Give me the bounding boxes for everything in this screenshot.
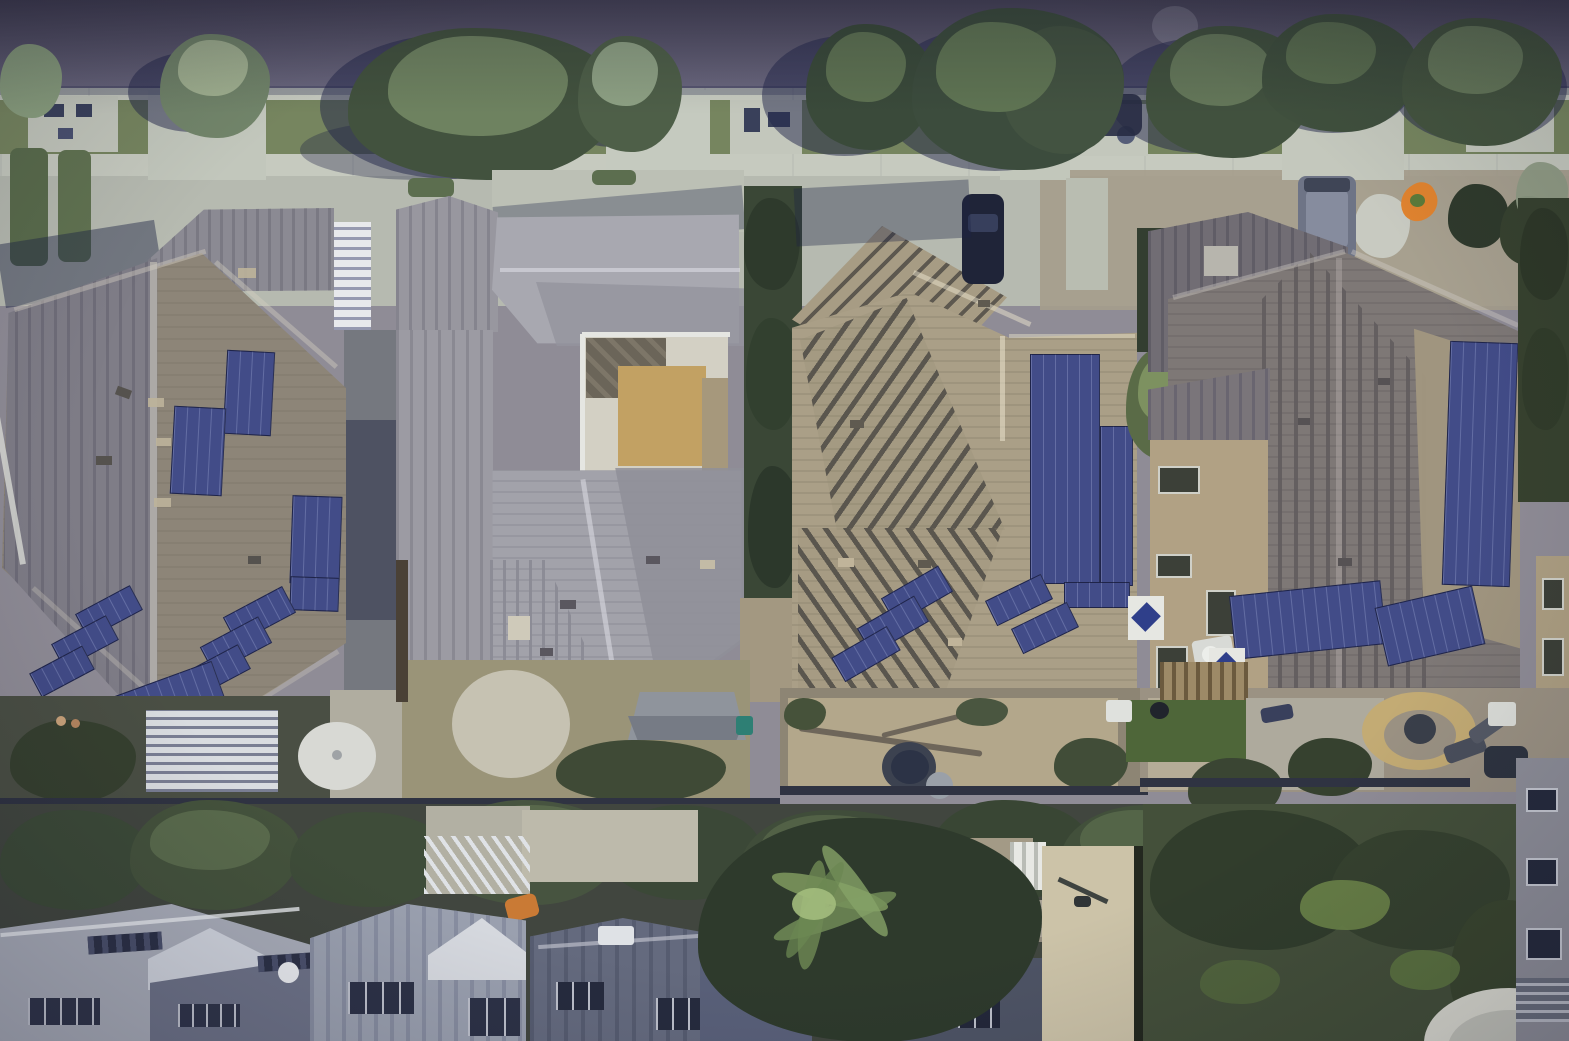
aerial-neighborhood-photo [0, 0, 1569, 1041]
fire-bowl [1404, 714, 1436, 744]
tree-highlight [150, 810, 270, 870]
tree-highlight [388, 36, 568, 136]
hedge [592, 170, 636, 185]
fence-dark [1134, 846, 1143, 1041]
roof-vent [1298, 418, 1310, 425]
roof-vent [1338, 558, 1352, 566]
umbrella-center [332, 750, 342, 760]
roof-patch [148, 398, 164, 407]
fence-line [780, 786, 1148, 795]
roof-vent [646, 556, 660, 564]
ac-unit [598, 926, 634, 945]
roof-patch [156, 438, 171, 446]
roof-ridge [1000, 336, 1005, 441]
solar-array [170, 406, 227, 497]
planter [784, 698, 826, 730]
wall-trim [580, 334, 585, 474]
window-row [178, 1004, 240, 1027]
side-yard-shadow [344, 420, 402, 620]
utility-box [76, 104, 92, 117]
courtyard-shade [702, 378, 728, 472]
tree-highlight [1286, 22, 1376, 84]
van-glass [1304, 178, 1350, 192]
roof-patch [1204, 246, 1238, 276]
lawn-strip [1126, 700, 1250, 762]
kayak-center [1410, 194, 1425, 207]
solar-array [1100, 426, 1133, 586]
wall-trim [582, 332, 730, 337]
hedge-blob [746, 318, 800, 430]
solar-array [289, 495, 342, 585]
roof-patch [508, 616, 530, 640]
palm-dark [1448, 184, 1508, 248]
patio-circle [452, 670, 570, 778]
roof-vent [918, 560, 931, 568]
planter [956, 698, 1008, 726]
front-shadow [794, 179, 972, 246]
roof-patch [238, 268, 256, 278]
person [71, 719, 80, 728]
hedge-blob [744, 198, 800, 290]
roof-vent [248, 556, 261, 564]
window [1158, 466, 1200, 494]
ac-unit [1106, 700, 1132, 722]
hedge-blob [1522, 328, 1568, 430]
tree-highlight [592, 42, 658, 106]
window-row [28, 998, 100, 1025]
fence-post [396, 560, 408, 702]
roof-vent [560, 600, 576, 609]
bottom-driveway [522, 810, 698, 882]
roof-patch [838, 558, 854, 567]
hedge-blob [1288, 738, 1372, 796]
pergola-trellis [146, 710, 278, 792]
lamp-head [1074, 896, 1091, 907]
tree-highlight [826, 32, 906, 102]
white-fence [424, 836, 530, 894]
planter [1054, 738, 1128, 790]
roof-vent [540, 648, 553, 656]
suv-glass [968, 214, 998, 232]
hedge-row-tree [0, 810, 150, 910]
grass-patch [1390, 950, 1460, 990]
solar-array [1030, 354, 1100, 584]
hedge [408, 178, 454, 197]
lawn-dark [556, 740, 726, 802]
roof-vent [96, 456, 112, 465]
grass-patch [1200, 960, 1280, 1004]
window-row [656, 998, 702, 1030]
spa-water [891, 750, 929, 784]
window-row [348, 982, 414, 1014]
window-row [556, 982, 604, 1010]
utility-box [744, 108, 760, 132]
roof-vent [978, 300, 990, 307]
balcony-rail [1516, 978, 1569, 1022]
palm-center [792, 888, 836, 920]
window-row [468, 998, 520, 1036]
window [1542, 638, 1564, 676]
window [1156, 554, 1192, 578]
courtyard-floor [618, 366, 706, 466]
street-tree [0, 44, 62, 118]
roof-vent [850, 420, 864, 428]
roof-ridge [500, 268, 740, 272]
window [1542, 578, 1564, 610]
palm-canopy [698, 818, 1042, 1041]
shed-roof-shade [628, 716, 746, 740]
teal-bin [736, 716, 753, 735]
fence-line [1140, 778, 1470, 787]
dark-bowl [1150, 702, 1169, 719]
roof-patch [700, 560, 715, 569]
solar-array [289, 576, 339, 612]
solar-array [1064, 582, 1130, 608]
front-walk [1066, 178, 1108, 290]
satellite-dish [278, 962, 299, 983]
roof-patch [948, 638, 962, 646]
solar-array [223, 350, 275, 436]
hedge-blob [10, 720, 136, 802]
roof-vent [1378, 378, 1390, 385]
person [56, 716, 66, 726]
house1-side-trellis [334, 222, 371, 330]
window [1526, 928, 1562, 960]
roof-patch [154, 498, 171, 507]
solar-array [1442, 341, 1518, 587]
window [1526, 858, 1558, 886]
utility-box [58, 128, 73, 139]
tree-highlight [1428, 26, 1523, 94]
ac-unit [1488, 702, 1516, 726]
house2-roof-nw [396, 196, 498, 332]
tree-highlight [1170, 34, 1270, 106]
house2-roof-west [396, 330, 493, 668]
grass-patch [1300, 880, 1390, 930]
tree-highlight [936, 22, 1056, 112]
window [1526, 788, 1558, 812]
tree-highlight [178, 40, 248, 96]
alley-concrete [1042, 846, 1136, 1041]
hedge-blob [1520, 208, 1568, 300]
roof-ridge [1009, 334, 1135, 338]
